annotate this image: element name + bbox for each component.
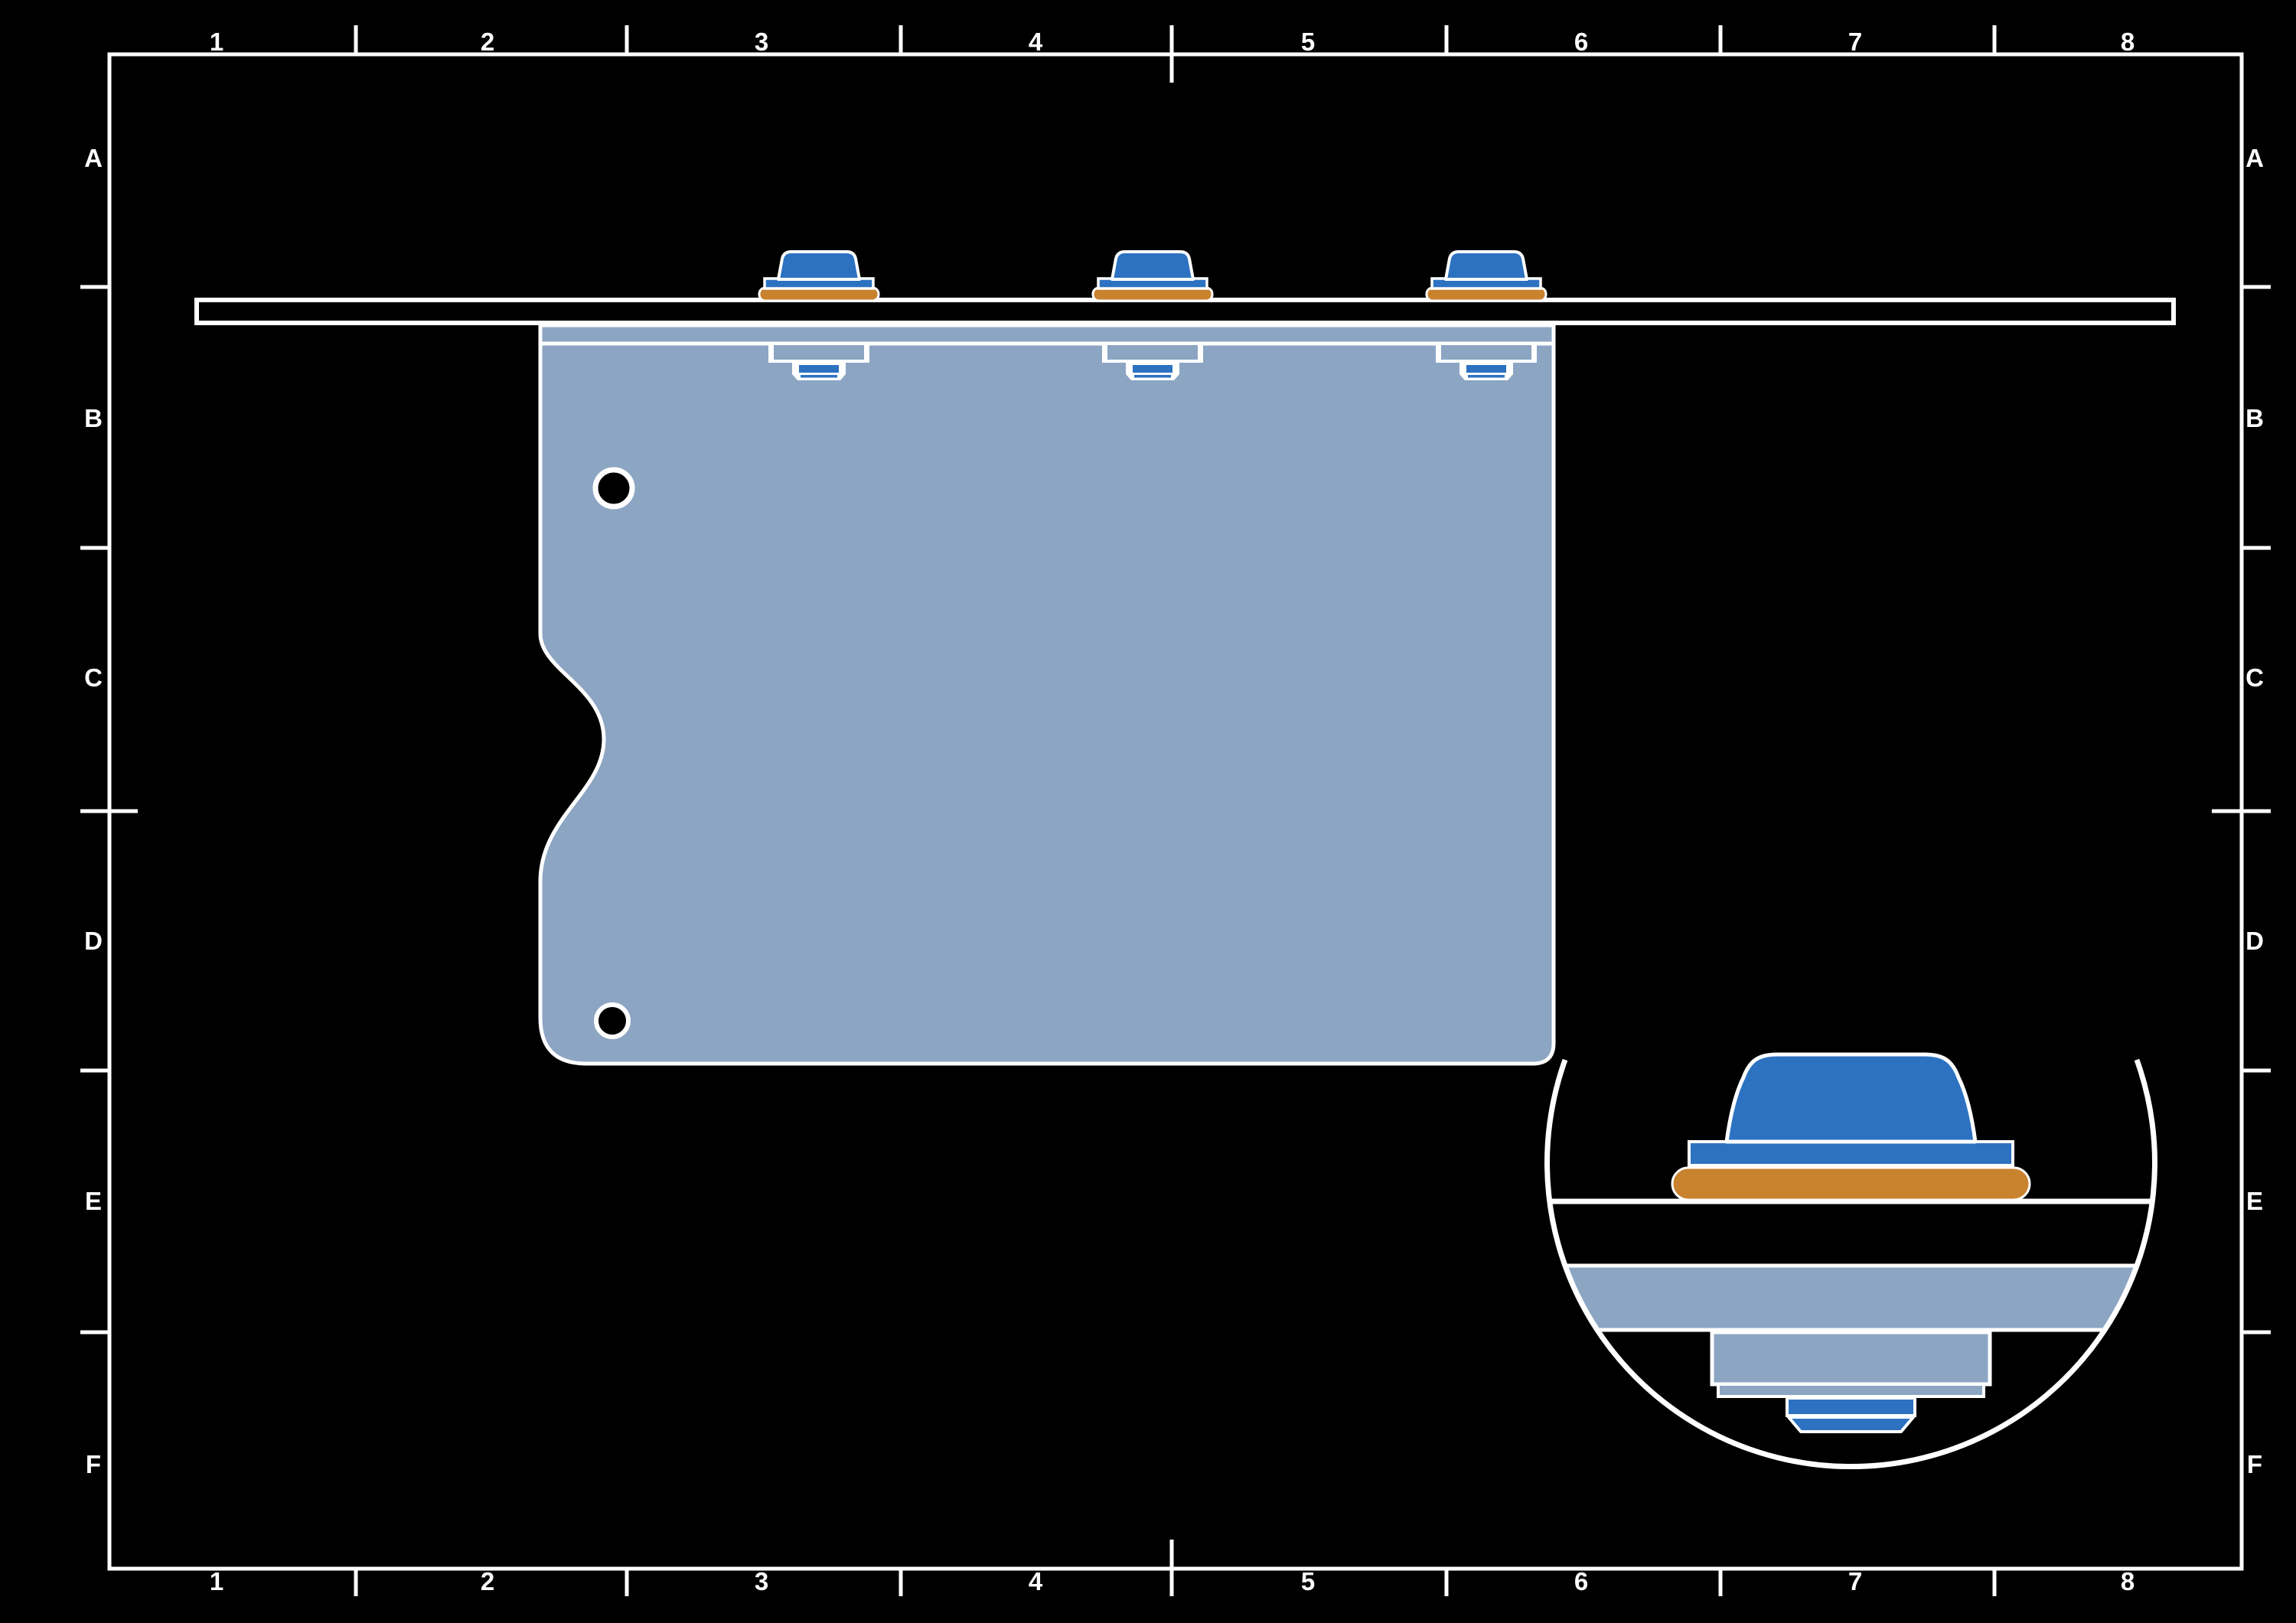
grid-col-label: 6 [1574,28,1588,56]
grid-col-label: 5 [1301,1567,1315,1595]
grid-col-label: 3 [755,1567,768,1595]
detail-receptacle-step [1718,1384,1984,1396]
grid-row-label: C [2245,663,2264,692]
grid-col-label: 2 [481,1567,494,1595]
grid-col-label: 8 [2121,28,2135,56]
grid-col-label: 6 [1574,1567,1588,1595]
grid-row-label: A [84,144,103,172]
grid-col-label: 8 [2121,1567,2135,1595]
grid-row-label: D [2245,927,2264,955]
grid-row-label: A [2245,144,2264,172]
bracket-panel [540,325,1554,1064]
fastener-2 [1093,252,1212,301]
drawing-sheet: 1 2 3 4 5 6 7 8 1 2 3 4 5 6 7 8 A B C D … [0,0,2296,1623]
fastener-1 [759,252,879,301]
grid-col-label: 4 [1029,1567,1043,1595]
detail-collar [1689,1142,2013,1165]
grid-row-label: C [84,663,103,692]
grid-row-label: E [85,1187,102,1215]
grid-col-label: 7 [1848,28,1862,56]
detail-stud-tip [1789,1417,1913,1432]
panel-hole-upper [595,470,632,507]
grid-col-label: 1 [210,28,223,56]
grid-col-label: 1 [210,1567,223,1595]
grid-row-label: F [2247,1450,2262,1478]
grid-col-label: 2 [481,28,494,56]
grid-col-label: 3 [755,28,768,56]
detail-washer [1672,1168,2030,1200]
grid-row-label: B [84,404,103,432]
grid-row-label: B [2245,404,2264,432]
panel-hole-lower [596,1005,628,1037]
detail-panel-band [1546,1266,2154,1330]
detail-stud [1787,1398,1915,1416]
grid-row-label: D [84,927,103,955]
detail-receptacle-body [1712,1332,1990,1384]
grid-col-label: 7 [1848,1567,1862,1595]
grid-col-label: 5 [1301,28,1315,56]
detail-view [1546,1054,2155,1467]
grid-row-label: F [86,1450,101,1478]
fastener-3 [1427,252,1546,301]
mounting-plate [197,300,2174,323]
grid-row-label: E [2246,1187,2263,1215]
main-view [197,252,2174,1064]
detail-cap [1727,1054,1975,1142]
grid-col-label: 4 [1029,28,1043,56]
